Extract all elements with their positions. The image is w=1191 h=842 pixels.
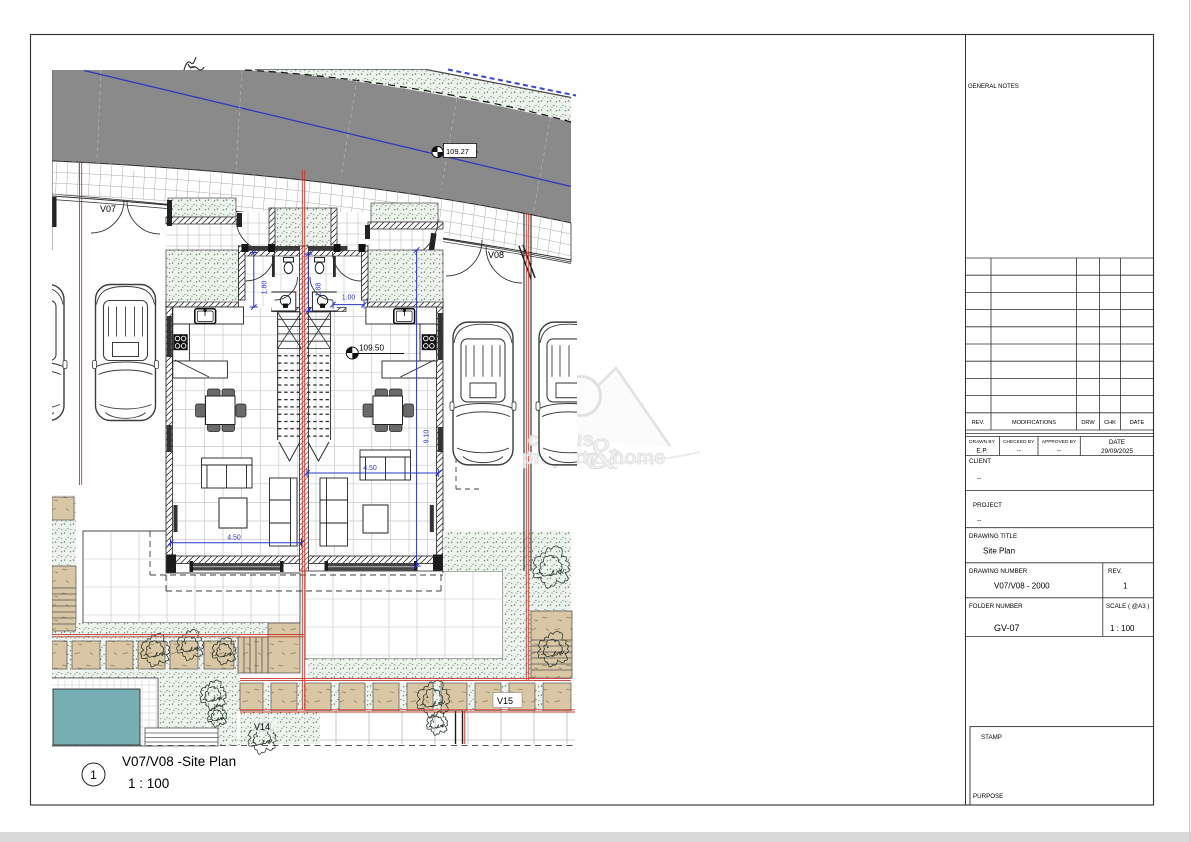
svg-text:--: -- [1017,448,1021,455]
svg-text:DATE: DATE [1130,420,1145,426]
svg-text:DRAWING NUMBER: DRAWING NUMBER [969,568,1028,575]
svg-text:109.27: 109.27 [446,147,469,156]
svg-text:PROJECT: PROJECT [973,502,1002,509]
svg-text:4.50: 4.50 [227,535,241,542]
svg-text:--: -- [1057,448,1061,455]
svg-text:MODIFICATIONS: MODIFICATIONS [1012,420,1056,426]
svg-text:V08: V08 [488,250,504,260]
svg-text:GV-07: GV-07 [994,623,1020,633]
svg-text:CLIENT: CLIENT [969,458,991,465]
svg-text:1.00: 1.00 [342,295,356,302]
svg-text:V07: V07 [100,204,116,214]
svg-text:1.88: 1.88 [316,283,323,297]
svg-text:home: home [612,447,665,469]
svg-text:1 : 100: 1 : 100 [1110,624,1135,633]
svg-text:V15: V15 [497,696,513,706]
svg-text:29/09/2025: 29/09/2025 [1101,448,1133,455]
svg-text:4.50: 4.50 [363,465,377,472]
svg-text:DRW: DRW [1081,420,1095,426]
svg-text:REV.: REV. [1108,568,1122,575]
svg-text:1: 1 [1123,582,1128,591]
svg-text:E.P.: E.P. [976,448,987,455]
svg-text:1.80: 1.80 [262,281,269,295]
svg-text:1 : 100: 1 : 100 [128,776,169,791]
svg-text:109.50: 109.50 [359,344,384,353]
svg-text:REV.: REV. [972,420,985,426]
svg-text:1: 1 [90,768,97,782]
svg-text:APPROVED BY: APPROVED BY [1042,439,1077,445]
svg-text:V14: V14 [254,722,270,732]
svg-text:DRAWN BY: DRAWN BY [969,439,995,445]
svg-text:Site Plan: Site Plan [983,547,1015,556]
svg-text:DRAWING TITLE: DRAWING TITLE [969,533,1017,540]
svg-text:PURPOSE: PURPOSE [973,793,1003,800]
svg-text:--: -- [977,475,981,482]
svg-text:--: -- [977,517,981,524]
svg-text:CHECKED BY: CHECKED BY [1003,439,1035,445]
svg-text:&: & [585,429,620,478]
svg-text:DATE: DATE [1109,439,1125,446]
svg-text:V07/V08 - 2000: V07/V08 - 2000 [994,582,1050,591]
svg-text:CHK: CHK [1104,420,1116,426]
svg-text:FOLDER NUMBER: FOLDER NUMBER [969,603,1023,610]
svg-text:9.10: 9.10 [424,430,431,444]
svg-text:STAMP: STAMP [981,734,1002,741]
svg-text:GENERAL NOTES: GENERAL NOTES [968,84,1019,90]
svg-text:SCALE ( @A3 ): SCALE ( @A3 ) [1106,603,1149,610]
svg-text:V07/V08 -Site Plan: V07/V08 -Site Plan [122,754,236,769]
